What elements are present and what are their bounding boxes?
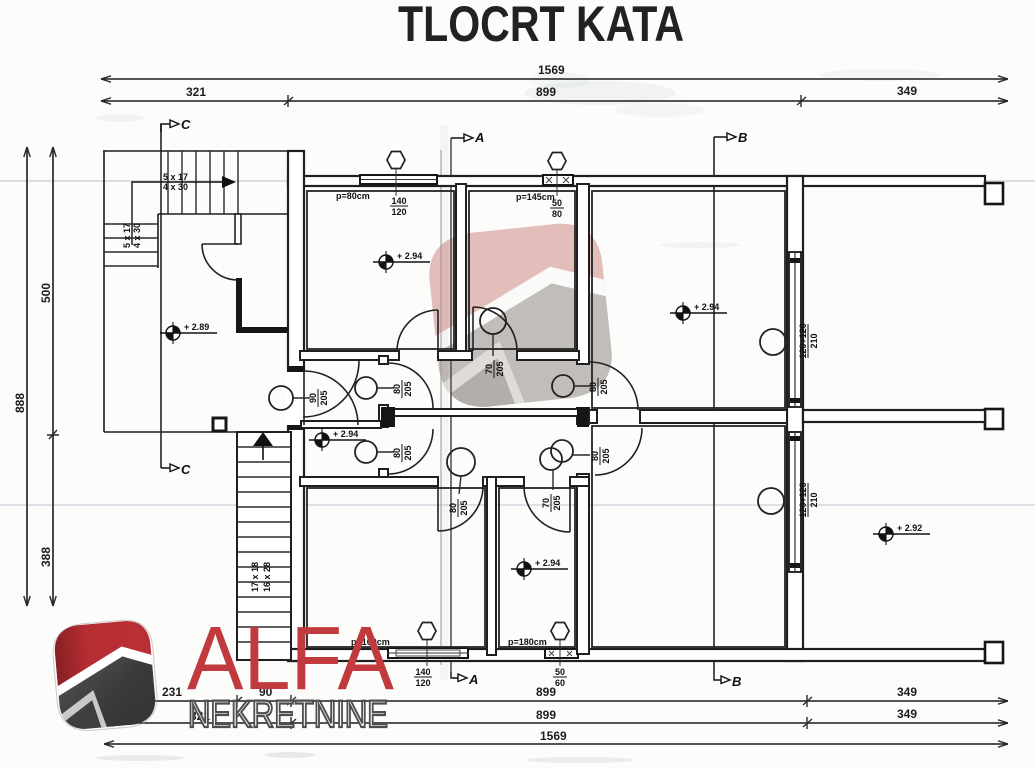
- svg-text:899: 899: [536, 685, 556, 699]
- svg-text:16 x 28: 16 x 28: [262, 562, 272, 592]
- svg-text:205: 205: [552, 495, 562, 510]
- svg-text:p=180cm: p=180cm: [508, 637, 547, 647]
- svg-text:A: A: [468, 672, 478, 687]
- svg-text:205: 205: [319, 390, 329, 405]
- svg-text:A: A: [474, 130, 484, 145]
- svg-text:140: 140: [415, 667, 430, 677]
- svg-text:210: 210: [809, 492, 819, 507]
- svg-text:120+120: 120+120: [798, 482, 808, 517]
- svg-text:205: 205: [459, 500, 469, 515]
- svg-text:50: 50: [555, 667, 565, 677]
- svg-text:60: 60: [555, 678, 565, 688]
- svg-text:349: 349: [897, 707, 917, 721]
- svg-text:+ 2.94: + 2.94: [333, 429, 358, 439]
- svg-text:50: 50: [552, 198, 562, 208]
- svg-text:4 x 30: 4 x 30: [132, 223, 142, 248]
- svg-text:205: 205: [403, 445, 413, 460]
- svg-text:80: 80: [552, 209, 562, 219]
- svg-text:B: B: [738, 130, 747, 145]
- svg-text:4 x 30: 4 x 30: [163, 182, 188, 192]
- svg-text:80: 80: [590, 451, 600, 461]
- svg-text:80: 80: [448, 503, 458, 513]
- svg-text:B: B: [732, 674, 741, 689]
- svg-text:205: 205: [495, 361, 505, 376]
- svg-text:17 x 18: 17 x 18: [250, 562, 260, 592]
- svg-text:205: 205: [599, 379, 609, 394]
- svg-text:C: C: [181, 462, 191, 477]
- svg-text:349: 349: [897, 685, 917, 699]
- svg-text:1569: 1569: [540, 729, 567, 743]
- svg-text:231: 231: [162, 685, 182, 699]
- svg-text:5 x 17: 5 x 17: [122, 223, 132, 248]
- svg-text:p=145cm: p=145cm: [516, 192, 555, 202]
- svg-text:+ 2.92: + 2.92: [897, 523, 922, 533]
- svg-text:TLOCRT KATA: TLOCRT KATA: [398, 0, 684, 52]
- svg-text:80: 80: [392, 448, 402, 458]
- svg-text:+ 2.89: + 2.89: [184, 322, 209, 332]
- svg-text:+ 2.94: + 2.94: [694, 302, 719, 312]
- svg-text:899: 899: [536, 708, 556, 722]
- svg-text:500: 500: [39, 283, 53, 303]
- svg-text:C: C: [181, 117, 191, 132]
- svg-text:+ 2.94: + 2.94: [397, 251, 422, 261]
- svg-text:888: 888: [13, 393, 27, 413]
- svg-text:210: 210: [809, 333, 819, 348]
- svg-text:205: 205: [601, 448, 611, 463]
- svg-text:899: 899: [536, 85, 556, 99]
- svg-text:80: 80: [588, 382, 598, 392]
- svg-text:120: 120: [391, 207, 406, 217]
- svg-text:90: 90: [308, 393, 318, 403]
- svg-text:NEKRETNINE: NEKRETNINE: [188, 694, 388, 736]
- svg-text:120: 120: [415, 678, 430, 688]
- svg-text:388: 388: [39, 547, 53, 567]
- svg-text:80: 80: [392, 384, 402, 394]
- svg-text:+ 2.94: + 2.94: [535, 558, 560, 568]
- svg-text:140: 140: [391, 196, 406, 206]
- svg-text:70: 70: [541, 498, 551, 508]
- svg-text:5 x 17: 5 x 17: [163, 172, 188, 182]
- svg-text:205: 205: [403, 381, 413, 396]
- svg-text:120+120: 120+120: [798, 323, 808, 358]
- svg-text:70: 70: [484, 364, 494, 374]
- svg-text:349: 349: [897, 84, 917, 98]
- svg-text:321: 321: [186, 85, 206, 99]
- svg-text:1569: 1569: [538, 63, 565, 77]
- svg-text:p=80cm: p=80cm: [336, 191, 370, 201]
